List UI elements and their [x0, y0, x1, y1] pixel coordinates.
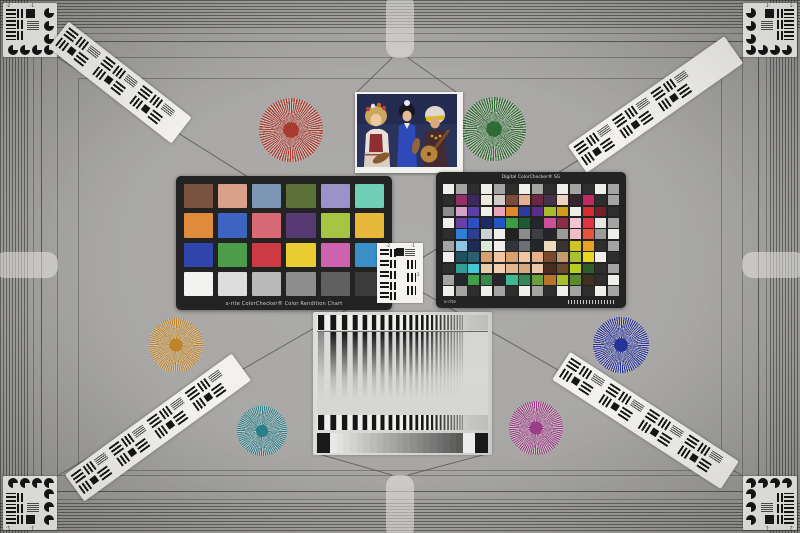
sg-color-patch	[519, 252, 530, 262]
resolution-bars	[380, 249, 389, 257]
sg-color-patch	[570, 229, 581, 239]
sg-color-patch	[570, 218, 581, 228]
micro-text-block	[405, 249, 415, 257]
sg-color-patch	[456, 218, 467, 228]
sg-color-patch	[583, 195, 594, 205]
sg-color-patch	[532, 207, 543, 217]
color-patch	[218, 184, 247, 208]
sg-color-patch	[583, 275, 594, 285]
resolution-bars	[390, 271, 397, 279]
wedge-black-end	[317, 433, 330, 453]
wedge-step	[430, 433, 437, 453]
sg-color-patch	[595, 195, 606, 205]
sg-color-patch	[519, 195, 530, 205]
sg-color-patch	[595, 241, 606, 251]
sg-color-patch	[557, 275, 568, 285]
sg-color-patch	[519, 286, 530, 296]
color-patch	[218, 243, 247, 267]
sg-color-patch	[595, 229, 606, 239]
wedge-black-end	[475, 433, 488, 453]
sg-color-patch	[519, 229, 530, 239]
sg-color-patch	[583, 229, 594, 239]
sg-color-patch	[519, 207, 530, 217]
sg-color-patch	[532, 218, 543, 228]
sg-color-patch	[570, 275, 581, 285]
sg-color-patch	[608, 195, 619, 205]
resolution-bars	[390, 260, 397, 268]
sg-color-patch	[608, 264, 619, 274]
wedge-step	[370, 433, 377, 453]
wedge-step	[450, 433, 457, 453]
siemens-star-red	[259, 98, 323, 162]
sg-color-patch	[468, 195, 479, 205]
test-photo-musicians	[355, 92, 463, 173]
sg-color-patch	[481, 207, 492, 217]
sg-color-patch	[544, 184, 555, 194]
test-chart-scene: -2-1-2-1-2-1-2-1	[0, 0, 800, 533]
wedge-step	[423, 433, 430, 453]
colorchecker-classic-chart: x-rite ColorChecker® Color Rendition Cha…	[176, 176, 392, 310]
color-patch	[184, 213, 213, 237]
sg-color-patch	[481, 184, 492, 194]
sg-color-patch	[532, 264, 543, 274]
color-patch	[355, 213, 384, 237]
wedge-step	[417, 433, 424, 453]
color-patch	[286, 272, 315, 296]
sg-color-patch	[570, 184, 581, 194]
color-patch	[252, 243, 281, 267]
sg-color-patch	[456, 207, 467, 217]
sg-color-patch	[595, 207, 606, 217]
sg-color-patch	[481, 264, 492, 274]
sg-color-patch	[506, 275, 517, 285]
resolution-bars	[380, 271, 389, 279]
color-patch	[321, 243, 350, 267]
wedge-white-patch	[463, 433, 475, 453]
sg-color-patch	[544, 207, 555, 217]
sg-color-patch	[608, 184, 619, 194]
sg-color-patch	[468, 252, 479, 262]
sg-color-patch	[443, 207, 454, 217]
sg-color-patch	[583, 218, 594, 228]
sg-color-patch	[494, 195, 505, 205]
sg-color-patch	[494, 241, 505, 251]
sg-color-patch	[544, 264, 555, 274]
sg-color-patch	[532, 241, 543, 251]
sg-color-patch	[608, 241, 619, 251]
sg-color-patch	[595, 264, 606, 274]
sg-color-patch	[519, 275, 530, 285]
sg-color-patch	[481, 286, 492, 296]
sg-color-patch	[456, 252, 467, 262]
sg-color-patch	[519, 218, 530, 228]
sg-ruler-ticks	[568, 300, 616, 304]
resolution-bars	[407, 260, 416, 269]
wedge-step	[390, 433, 397, 453]
fiducial-square	[396, 248, 404, 256]
sg-color-patch	[544, 286, 555, 296]
sg-color-patch	[544, 252, 555, 262]
sg-color-patch	[557, 207, 568, 217]
color-patch	[218, 272, 247, 296]
wedge-step	[383, 433, 390, 453]
sg-color-patch	[443, 218, 454, 228]
sg-color-patch	[456, 275, 467, 285]
sg-color-patch	[494, 286, 505, 296]
wedge-step	[397, 433, 404, 453]
sg-color-patch	[519, 241, 530, 251]
sg-color-patch	[557, 252, 568, 262]
sg-color-patch	[532, 184, 543, 194]
colorchecker-classic-grid	[184, 184, 384, 296]
sg-color-patch	[544, 229, 555, 239]
sg-color-patch	[583, 252, 594, 262]
sg-color-patch	[532, 275, 543, 285]
wedge-step	[443, 433, 450, 453]
sg-color-patch	[583, 286, 594, 296]
sg-color-patch	[443, 275, 454, 285]
usaf-label: -1	[411, 244, 415, 248]
sg-color-patch	[583, 207, 594, 217]
siemens-star-green	[462, 97, 526, 161]
resolution-bars	[390, 282, 397, 290]
wedge-step	[357, 433, 364, 453]
sg-color-patch	[557, 218, 568, 228]
sg-color-patch	[506, 195, 517, 205]
colorchecker-classic-label: x-rite ColorChecker® Color Rendition Cha…	[176, 301, 392, 307]
sg-color-patch	[494, 252, 505, 262]
sg-color-patch	[570, 264, 581, 274]
sg-color-patch	[506, 184, 517, 194]
resolution-bars	[390, 249, 397, 257]
sg-color-patch	[608, 252, 619, 262]
sg-color-patch	[456, 286, 467, 296]
sg-color-patch	[608, 207, 619, 217]
sg-color-patch	[583, 241, 594, 251]
color-patch	[184, 184, 213, 208]
sg-color-patch	[468, 229, 479, 239]
sg-color-patch	[506, 218, 517, 228]
siemens-star-teal	[237, 406, 287, 456]
sg-color-patch	[519, 264, 530, 274]
sg-color-patch	[456, 264, 467, 274]
fade-cover	[317, 332, 488, 416]
sg-color-patch	[557, 241, 568, 251]
sg-color-patch	[608, 286, 619, 296]
sg-color-patch	[494, 218, 505, 228]
color-patch	[252, 184, 281, 208]
wedge-step	[363, 433, 370, 453]
sg-color-patch	[506, 241, 517, 251]
sg-color-patch	[532, 252, 543, 262]
sg-color-patch	[456, 241, 467, 251]
color-patch	[321, 213, 350, 237]
center-usaf-target: -2-12	[377, 243, 423, 303]
siemens-star-blue	[593, 317, 649, 373]
sg-color-patch	[506, 229, 517, 239]
frequency-sweep-top	[317, 315, 488, 330]
sg-color-patch	[595, 275, 606, 285]
usaf-label: 2	[417, 273, 420, 277]
sg-color-patch	[570, 241, 581, 251]
sg-color-patch	[595, 252, 606, 262]
colorchecker-sg-chart: Digital ColorChecker® SG x-rite	[436, 172, 626, 308]
sg-color-patch	[456, 184, 467, 194]
sg-color-patch	[557, 195, 568, 205]
sg-color-patch	[443, 264, 454, 274]
wedge-step	[456, 433, 463, 453]
sg-color-patch	[494, 184, 505, 194]
sg-color-patch	[494, 264, 505, 274]
sg-color-patch	[595, 218, 606, 228]
sg-color-patch	[443, 252, 454, 262]
sg-color-patch	[468, 241, 479, 251]
sg-color-patch	[570, 252, 581, 262]
sg-color-patch	[468, 184, 479, 194]
color-patch	[286, 184, 315, 208]
x-rite-logo: x-rite	[444, 300, 456, 305]
sg-color-patch	[570, 207, 581, 217]
sg-color-patch	[443, 286, 454, 296]
sg-color-patch	[519, 184, 530, 194]
sg-color-patch	[544, 195, 555, 205]
color-patch	[218, 213, 247, 237]
sg-color-patch	[468, 275, 479, 285]
sg-color-patch	[532, 286, 543, 296]
siemens-star-orange	[149, 318, 203, 372]
sg-color-patch	[481, 229, 492, 239]
sg-color-patch	[583, 264, 594, 274]
resolution-bars	[407, 273, 416, 282]
sg-color-patch	[557, 229, 568, 239]
siemens-star-magenta	[509, 401, 563, 455]
colorchecker-sg-grid	[443, 184, 619, 296]
sg-color-patch	[583, 184, 594, 194]
sg-color-patch	[544, 218, 555, 228]
color-patch	[184, 272, 213, 296]
fading-stripes	[317, 332, 488, 416]
wedge-step	[350, 433, 357, 453]
color-patch	[252, 213, 281, 237]
sg-color-patch	[544, 275, 555, 285]
sg-color-patch	[443, 184, 454, 194]
sg-color-patch	[481, 275, 492, 285]
sg-color-patch	[608, 275, 619, 285]
grayscale-step-wedge	[317, 433, 488, 453]
color-patch	[355, 184, 384, 208]
gray-gradient-panel	[313, 312, 492, 455]
sg-color-patch	[506, 286, 517, 296]
musicians-illustration	[357, 94, 457, 167]
frequency-sweep-bottom	[317, 415, 488, 430]
wedge-step	[343, 433, 350, 453]
color-patch	[286, 243, 315, 267]
sg-color-patch	[494, 207, 505, 217]
sg-color-patch	[608, 229, 619, 239]
wedge-step	[337, 433, 344, 453]
sg-color-patch	[494, 229, 505, 239]
sg-color-patch	[481, 252, 492, 262]
sg-color-patch	[532, 229, 543, 239]
resolution-bars	[380, 260, 389, 268]
sg-color-patch	[468, 218, 479, 228]
wedge-step	[437, 433, 444, 453]
sg-color-patch	[557, 286, 568, 296]
color-patch	[321, 184, 350, 208]
sg-color-patch	[481, 218, 492, 228]
wedge-step	[403, 433, 410, 453]
sg-color-patch	[443, 241, 454, 251]
sg-color-patch	[468, 264, 479, 274]
sg-color-patch	[608, 218, 619, 228]
resolution-bars	[390, 292, 397, 300]
sg-color-patch	[468, 207, 479, 217]
sg-color-patch	[481, 241, 492, 251]
colorchecker-sg-title: Digital ColorChecker® SG	[436, 175, 626, 180]
sg-color-patch	[595, 286, 606, 296]
sg-color-patch	[456, 195, 467, 205]
color-patch	[321, 272, 350, 296]
color-patch	[184, 243, 213, 267]
sg-color-patch	[570, 195, 581, 205]
usaf-label: -2	[386, 244, 390, 248]
color-patch	[286, 213, 315, 237]
sg-color-patch	[557, 264, 568, 274]
sg-color-patch	[595, 184, 606, 194]
sg-color-patch	[506, 207, 517, 217]
resolution-bars	[380, 282, 389, 290]
resolution-bars	[407, 286, 416, 295]
color-patch	[252, 272, 281, 296]
sg-color-patch	[443, 195, 454, 205]
sg-color-patch	[570, 286, 581, 296]
sg-color-patch	[544, 241, 555, 251]
sg-color-patch	[456, 229, 467, 239]
sg-color-patch	[506, 252, 517, 262]
sg-color-patch	[506, 264, 517, 274]
wedge-step	[377, 433, 384, 453]
sg-color-patch	[494, 275, 505, 285]
wedge-step	[410, 433, 417, 453]
sg-color-patch	[468, 286, 479, 296]
wedge-step	[330, 433, 337, 453]
sg-color-patch	[532, 195, 543, 205]
sg-color-patch	[443, 229, 454, 239]
sg-color-patch	[481, 195, 492, 205]
resolution-bars	[380, 292, 389, 300]
sg-color-patch	[557, 184, 568, 194]
